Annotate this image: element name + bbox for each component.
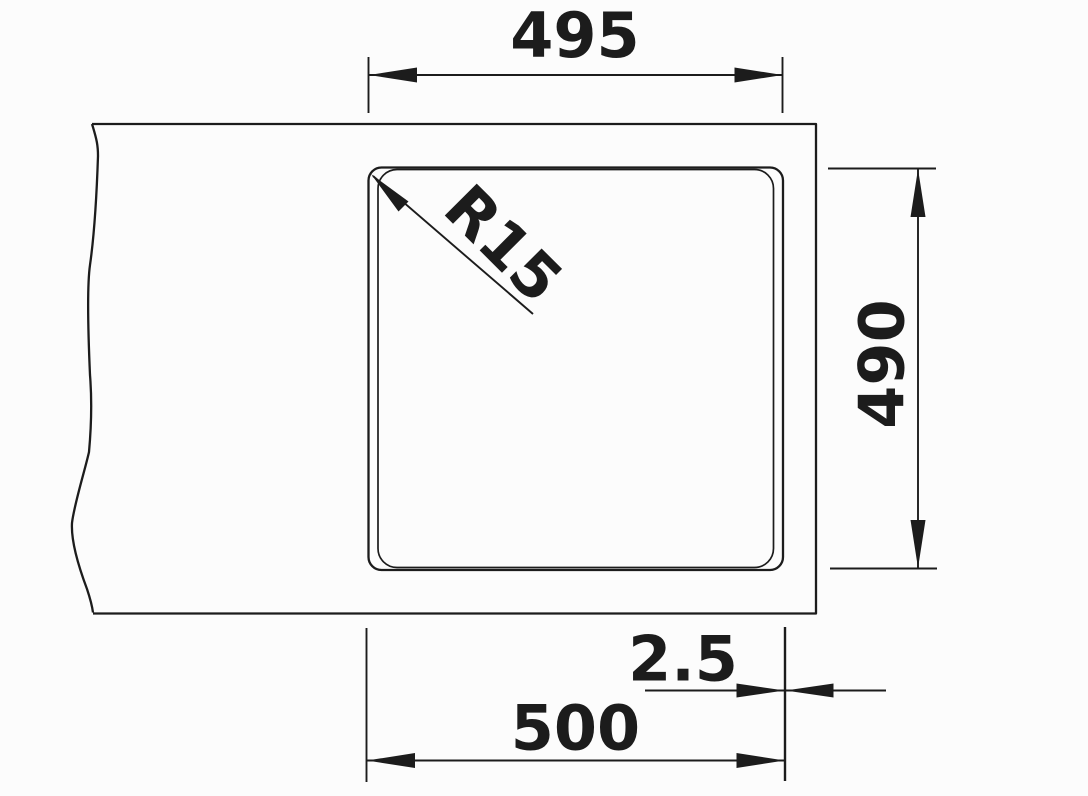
dimension-value-height-right: 490 xyxy=(846,299,919,428)
dimension-value-width-top: 495 xyxy=(510,0,639,72)
arrowhead-down xyxy=(911,520,926,568)
dimension-drawing: 495 490 R15 2.5 500 xyxy=(0,0,1088,796)
arrowhead-right xyxy=(737,753,785,768)
arrowhead-left xyxy=(367,753,415,768)
radius-label: R15 xyxy=(430,171,576,317)
arrowhead-corner xyxy=(371,174,409,212)
drawing-canvas: 495 490 R15 2.5 500 xyxy=(0,0,1088,796)
dimension-edge-offset: 2.5 xyxy=(628,623,886,698)
arrowhead-pointing-right xyxy=(737,684,785,698)
countertop-break-edge-wavy xyxy=(72,124,98,613)
radius-callout: R15 xyxy=(371,171,576,317)
dimension-value-edge-offset: 2.5 xyxy=(628,623,738,696)
arrowhead-up xyxy=(911,169,926,217)
countertop xyxy=(72,124,816,614)
arrowhead-pointing-left xyxy=(786,684,834,698)
dimension-height-right: 490 xyxy=(828,169,937,569)
sink-outer-edge xyxy=(369,168,784,571)
dimension-width-top: 495 xyxy=(369,0,783,113)
dimension-value-width-bottom: 500 xyxy=(511,692,640,765)
arrowhead-right xyxy=(735,68,783,83)
sink xyxy=(369,168,784,571)
arrowhead-left xyxy=(369,68,417,83)
